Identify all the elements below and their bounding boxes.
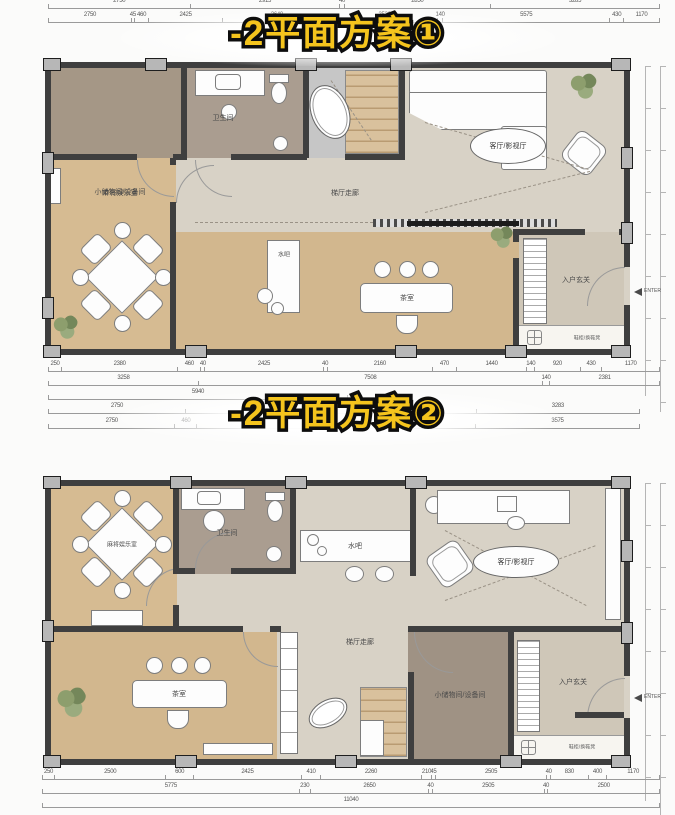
column-block <box>611 345 631 358</box>
kettle-symbol <box>271 302 284 315</box>
stool <box>114 582 131 599</box>
sink-basin <box>197 491 221 505</box>
toilet-bowl <box>267 500 283 522</box>
foyer-label: 入户玄关 <box>562 275 590 285</box>
dim-segment: 11040 <box>42 803 660 808</box>
dim-segment: 2381 <box>549 381 660 386</box>
column-block <box>42 297 54 319</box>
dim-segment: 2160 <box>327 367 432 372</box>
dim-value: 470 <box>440 361 449 367</box>
dim-value: 2260 <box>365 769 377 775</box>
wall-stairs-living <box>399 68 405 158</box>
kettle-symbol <box>317 546 327 556</box>
dim-segment: 3258 <box>48 381 198 386</box>
dim-segment: 920 <box>534 367 580 372</box>
floorplan-canvas: 275029154028503285 275045460242536403520… <box>0 0 675 815</box>
toilet-bowl <box>271 82 287 104</box>
dim-value: 250 <box>44 769 53 775</box>
column-block <box>611 755 631 768</box>
corridor-label: 梯厅走廊 <box>331 188 359 198</box>
dim-value: 2850 <box>411 0 423 4</box>
plan2-title: -2平面方案② -2平面方案② <box>230 396 445 431</box>
column-block <box>43 755 61 768</box>
wall-foyer-north-a <box>513 229 585 235</box>
column-block <box>405 476 427 489</box>
dim-row-p1-2: 325875081402381 <box>48 374 660 386</box>
dim-value: 3258 <box>117 375 129 381</box>
dim-segment: 2425 <box>204 367 322 372</box>
dim-segment: 410 <box>301 775 320 780</box>
stool <box>399 261 416 278</box>
wall-storage-east <box>508 632 514 759</box>
wall-bath-south-b <box>231 568 296 574</box>
compass-icon <box>527 330 542 345</box>
dim-segment: 2915 <box>190 4 340 9</box>
dim-value: 1170 <box>627 769 639 775</box>
column-block <box>170 476 192 489</box>
dim-value: 2380 <box>114 361 126 367</box>
living-room-label: 客厅/影视厅 <box>490 141 527 151</box>
shoe-cabinet-label: 鞋柜/换鞋凳 <box>569 744 595 751</box>
stool <box>114 490 131 507</box>
dim-value: 430 <box>586 361 595 367</box>
plant <box>57 685 87 719</box>
tea-room-label: 茶室 <box>400 293 414 303</box>
bath-label: 卫生间 <box>217 528 238 538</box>
wall-bath-stairs <box>303 68 309 158</box>
wall-stairs-south <box>345 154 405 160</box>
dim-segment: 210 <box>421 775 431 780</box>
dim-segment: 140 <box>526 367 534 372</box>
armchair-cushion <box>429 543 471 585</box>
stool <box>194 657 211 674</box>
dim-segment: 5775 <box>42 789 299 794</box>
stool <box>422 261 439 278</box>
shoe-cabinet-label: 鞋柜/换鞋凳 <box>574 335 600 342</box>
sink-basin <box>215 74 241 90</box>
dim-segment: 2500 <box>547 789 660 794</box>
media-cabinet <box>605 488 621 620</box>
bidet-symbol <box>266 546 282 562</box>
low-cabinet <box>91 610 143 626</box>
column-block <box>621 540 633 562</box>
dim-value: 410 <box>306 769 315 775</box>
living-room-label-bubble: 客厅/影视厅 <box>473 546 559 578</box>
stool <box>146 657 163 674</box>
column-block <box>621 222 633 244</box>
dim-segment: 2505 <box>432 789 544 794</box>
compass-icon <box>521 740 536 755</box>
desk-monitor <box>497 496 517 512</box>
wall-mahjong-east-b <box>170 202 176 349</box>
wall-bath-south <box>231 154 307 160</box>
baseboard-cabinet <box>203 743 273 755</box>
column-block <box>611 58 631 71</box>
dim-segment: 430 <box>580 367 602 372</box>
plan2-title-text: -2平面方案② <box>230 396 445 431</box>
column-block <box>621 622 633 644</box>
column-block <box>335 755 357 768</box>
wall-storage-south-a <box>51 154 137 160</box>
tea-chair <box>167 710 189 729</box>
stool <box>114 222 131 239</box>
dim-segment: 2750 <box>48 4 190 9</box>
stool <box>171 657 188 674</box>
column-block <box>611 476 631 489</box>
dim-row-p1-1: 2502380460402425402160470144014092043011… <box>48 360 660 372</box>
column-block <box>43 476 61 489</box>
storage-label: 小储物间/设备间 <box>435 690 486 700</box>
dim-value: 2750 <box>113 0 125 4</box>
enter-label: ENTER <box>644 288 661 294</box>
stool <box>257 288 273 304</box>
armchair <box>424 538 477 591</box>
column-block <box>395 345 417 358</box>
dim-row-p2-2: 57752302650402505402500 <box>42 782 660 794</box>
stool <box>72 536 89 553</box>
dim-value: 7508 <box>364 375 376 381</box>
dim-value: 2505 <box>485 769 497 775</box>
armchair <box>559 128 610 179</box>
dim-segment: 470 <box>432 367 456 372</box>
dim-value: 920 <box>553 361 562 367</box>
dim-value: 1170 <box>625 361 637 367</box>
dim-value: 2500 <box>598 783 610 789</box>
tea-chair <box>396 315 418 334</box>
dim-value: 2425 <box>258 361 270 367</box>
column-block <box>505 345 527 358</box>
wall-bar-living <box>410 486 416 576</box>
mahjong-room-label: 麻将娱乐室 <box>107 540 137 549</box>
dim-row-top-1: 275029154028503285 <box>48 0 660 9</box>
dim-segment: 830 <box>550 775 588 780</box>
dim-segment: 250 <box>48 367 61 372</box>
dim-value: 250 <box>50 361 59 367</box>
plant <box>490 225 514 249</box>
corridor-dash <box>195 222 373 223</box>
floorplan-1: 客厅/影视厅 梯厅走廊 麻将娱乐室 水吧 茶室 <box>45 62 630 355</box>
dim-value: 460 <box>185 361 194 367</box>
dim-value: 2650 <box>363 783 375 789</box>
dim-value: 5775 <box>165 783 177 789</box>
wall-foyer-west <box>513 258 519 349</box>
storage-label: 小储物间/设备间 <box>95 187 146 197</box>
dim-segment: 250 <box>42 775 54 780</box>
stool <box>114 315 131 332</box>
dim-value: 2915 <box>259 0 271 4</box>
dim-value: 3285 <box>569 0 581 4</box>
tea-shelf-column <box>280 632 298 754</box>
wall-right-upper <box>624 480 630 676</box>
wall-mahjong-east-a <box>170 158 176 165</box>
column-block <box>285 476 307 489</box>
living-room-label: 客厅/影视厅 <box>498 557 535 567</box>
room-storage-1 <box>51 68 183 158</box>
corridor-label: 梯厅走廊 <box>346 637 374 647</box>
dim-segment: 2505 <box>435 775 547 780</box>
dim-value: 11040 <box>344 797 359 803</box>
dim-line-vertical <box>645 66 651 396</box>
dim-value: 400 <box>593 769 602 775</box>
water-bar-label: 水吧 <box>278 250 290 259</box>
column-block <box>621 147 633 169</box>
dim-value: 2505 <box>482 783 494 789</box>
dim-value: 830 <box>565 769 574 775</box>
floorplan-2: 麻将娱乐室 卫生间 水吧 客厅/影视厅 <box>45 480 630 765</box>
wall-storage-north <box>408 626 624 632</box>
dim-row-p2-1: 2502500600242541022602104525054083040011… <box>42 768 660 780</box>
plan1-title: -2平面方案① -2平面方案① <box>230 16 445 51</box>
dim-value: 230 <box>300 783 309 789</box>
column-block <box>175 755 197 768</box>
stair-landing <box>360 720 384 756</box>
plan1-title-wrap: -2平面方案① -2平面方案① <box>0 16 675 51</box>
stool <box>374 261 391 278</box>
dim-segment: 400 <box>588 775 607 780</box>
wall-storage-bath <box>181 68 187 158</box>
plant <box>53 314 79 340</box>
sightline <box>425 171 590 213</box>
stool <box>72 269 89 286</box>
dim-segment: 460 <box>177 367 200 372</box>
dim-segment: 2850 <box>344 4 491 9</box>
column-block <box>42 620 54 642</box>
column-block <box>43 345 61 358</box>
column-block <box>185 345 207 358</box>
foyer-label: 入户玄关 <box>559 677 587 687</box>
foyer-shelving <box>523 238 547 324</box>
dim-segment: 2425 <box>193 775 301 780</box>
column-block <box>43 58 61 71</box>
dim-segment: 230 <box>299 789 310 794</box>
bath-label: 卫生间 <box>213 113 234 123</box>
foyer-shelving <box>517 640 540 732</box>
enter-arrow-icon <box>634 694 642 702</box>
stool <box>155 536 172 553</box>
wall-bath-east <box>290 486 296 574</box>
dim-value: 2160 <box>374 361 386 367</box>
dim-segment: 2650 <box>310 789 428 794</box>
dim-segment: 600 <box>165 775 192 780</box>
dim-segment: 1440 <box>456 367 527 372</box>
dim-segment: 2260 <box>320 775 421 780</box>
dim-line-vertical <box>645 483 651 801</box>
sofa-back <box>409 70 547 94</box>
kettle-symbol <box>307 534 319 546</box>
stool <box>345 566 364 582</box>
dim-line-vertical <box>660 483 666 815</box>
wall-mahjong-east-a <box>173 486 179 568</box>
enter-arrow-icon <box>634 288 642 296</box>
wall-storage-west <box>408 672 414 759</box>
wall-top <box>45 480 630 486</box>
dim-segment: 1170 <box>606 775 660 780</box>
living-room-label-bubble: 客厅/影视厅 <box>470 128 546 164</box>
wall-bottom <box>45 349 630 355</box>
dim-row-p2-3: 11040 <box>42 796 660 808</box>
room-teabar-1 <box>176 232 519 349</box>
dim-value: 1440 <box>485 361 497 367</box>
wall-bath-south-a <box>173 568 195 574</box>
plan1-title-text: -2平面方案① <box>230 16 445 51</box>
column-block <box>42 152 54 174</box>
dim-segment: 7508 <box>198 381 542 386</box>
dim-segment: 140 <box>542 381 549 386</box>
column-block <box>500 755 522 768</box>
dim-value: 2425 <box>241 769 253 775</box>
dim-segment: 2500 <box>54 775 165 780</box>
wall-tea-north-b <box>270 626 281 632</box>
wall-tea-north-a <box>51 626 243 632</box>
dim-value: 2500 <box>104 769 116 775</box>
enter-label: ENTER <box>644 694 661 700</box>
dim-value: 600 <box>175 769 184 775</box>
plan2-title-wrap: -2平面方案② -2平面方案② <box>0 396 675 431</box>
water-bar-label: 水吧 <box>348 541 362 551</box>
plant <box>570 72 598 100</box>
corridor-sculpture <box>303 691 352 735</box>
dim-line-vertical <box>660 66 666 412</box>
dim-segment: 3285 <box>490 4 660 9</box>
door-arc-mahjong <box>176 165 214 203</box>
desk-chair <box>507 516 525 530</box>
bidet-symbol <box>273 136 288 151</box>
stool <box>375 566 394 582</box>
tea-room-label: 茶室 <box>172 689 186 699</box>
dim-segment: 1170 <box>601 367 660 372</box>
dim-value: 2381 <box>599 375 611 381</box>
wall-foyer-stub <box>575 712 624 718</box>
dim-segment: 2380 <box>61 367 177 372</box>
